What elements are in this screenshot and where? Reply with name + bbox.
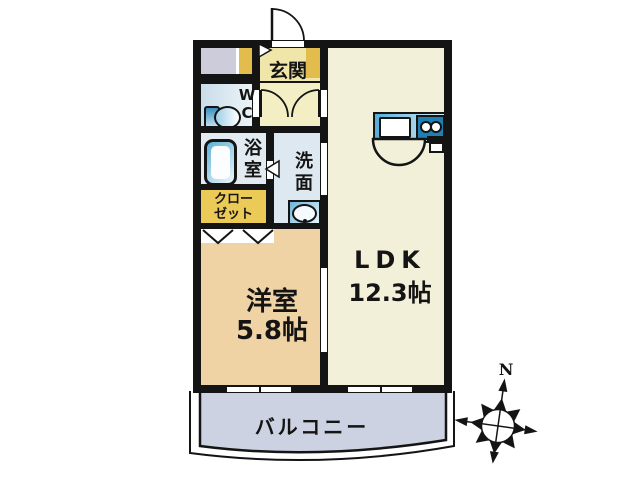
wc-door-swing-icon (261, 90, 288, 117)
closet-label-line1: クロー (202, 192, 265, 207)
ldk-size-label: 12.3帖 (329, 273, 451, 308)
kitchen-counter-curve (373, 139, 425, 165)
folding-door-icon (203, 230, 233, 243)
bath-door-flag-icon (266, 161, 279, 177)
closet-label: クロー ゼット (202, 192, 265, 222)
bath-label: 浴 室 (243, 138, 263, 182)
ldk-label: LDK (331, 246, 449, 274)
compass-north-label: N (496, 360, 516, 379)
wc-label-line2: C (237, 104, 257, 122)
closet-label-line2: ゼット (202, 207, 265, 222)
washroom-label-line1: 洗 (294, 151, 314, 173)
bath-label-line1: 浴 (243, 138, 263, 160)
bath-label-line2: 室 (243, 160, 263, 182)
entrance-door-swing-icon (272, 8, 304, 41)
washroom-label-line2: 面 (294, 173, 314, 195)
folding-door-icon (243, 230, 273, 243)
compass-rose-icon (449, 372, 544, 469)
balcony-label: バルコニー (212, 411, 412, 440)
entrance-label: 玄関 (260, 56, 316, 83)
wc-label-line1: W (237, 86, 257, 104)
floorplan-canvas: 玄関 W C 浴 室 洗 面 クロー ゼット 洋室 5.8帖 LDK 12.3帖… (0, 0, 640, 480)
bedroom-size-label: 5.8帖 (206, 310, 338, 347)
ldk-door-swing-icon (292, 90, 319, 117)
linework-layer (0, 0, 640, 480)
washroom-label: 洗 面 (294, 151, 314, 195)
